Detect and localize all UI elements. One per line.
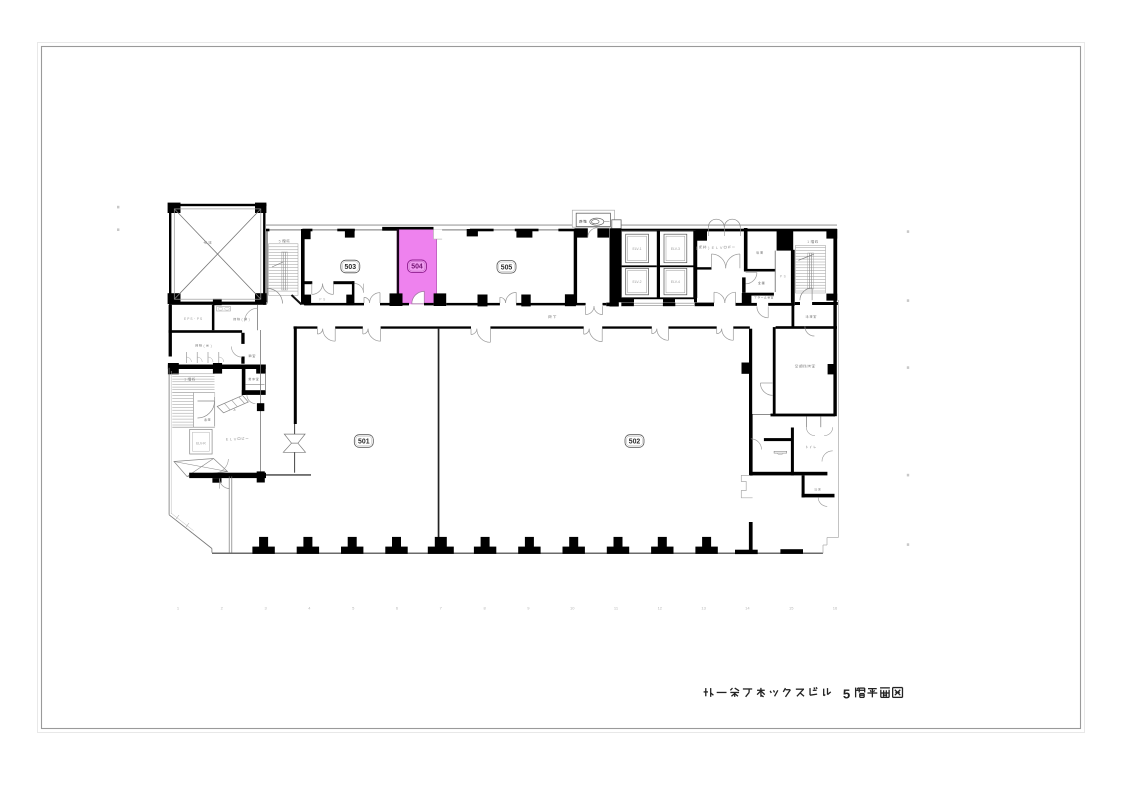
svg-text:16: 16 bbox=[833, 606, 838, 611]
svg-text:ELV-3: ELV-3 bbox=[671, 247, 680, 251]
svg-text:15: 15 bbox=[789, 606, 794, 611]
svg-text:10: 10 bbox=[570, 606, 575, 611]
svg-text:S: S bbox=[323, 297, 325, 301]
svg-text:): ) bbox=[211, 344, 212, 348]
svg-text:P: P bbox=[319, 297, 321, 301]
svg-text:ELV-4: ELV-4 bbox=[671, 280, 680, 284]
svg-text:1: 1 bbox=[184, 378, 186, 382]
svg-text:504: 504 bbox=[411, 263, 423, 270]
svg-text:L: L bbox=[230, 437, 232, 441]
svg-text:E: E bbox=[184, 317, 186, 321]
svg-text:S: S bbox=[200, 317, 202, 321]
svg-text:14: 14 bbox=[745, 606, 750, 611]
svg-text:5: 5 bbox=[843, 686, 850, 701]
svg-text:P: P bbox=[187, 317, 189, 321]
svg-text:502: 502 bbox=[629, 439, 641, 446]
svg-text:501: 501 bbox=[358, 439, 370, 446]
svg-text:): ) bbox=[249, 318, 250, 322]
svg-text:13: 13 bbox=[701, 606, 706, 611]
svg-text:505: 505 bbox=[501, 264, 513, 271]
svg-text:ELV-2: ELV-2 bbox=[633, 280, 642, 284]
svg-text:S: S bbox=[190, 317, 192, 321]
svg-text:E: E bbox=[226, 437, 229, 441]
svg-text:12: 12 bbox=[658, 606, 663, 611]
svg-text:S: S bbox=[784, 275, 786, 279]
svg-text:ELV-1: ELV-1 bbox=[633, 247, 642, 251]
svg-text:503: 503 bbox=[345, 264, 357, 271]
svg-text:P: P bbox=[197, 317, 199, 321]
svg-text:V: V bbox=[234, 437, 237, 441]
svg-text:ELV-R: ELV-R bbox=[196, 442, 206, 446]
svg-text:P: P bbox=[780, 275, 782, 279]
svg-text:5: 5 bbox=[279, 240, 281, 244]
svg-text:1: 1 bbox=[807, 240, 809, 244]
svg-text:E: E bbox=[712, 246, 715, 250]
svg-text:L: L bbox=[716, 246, 718, 250]
